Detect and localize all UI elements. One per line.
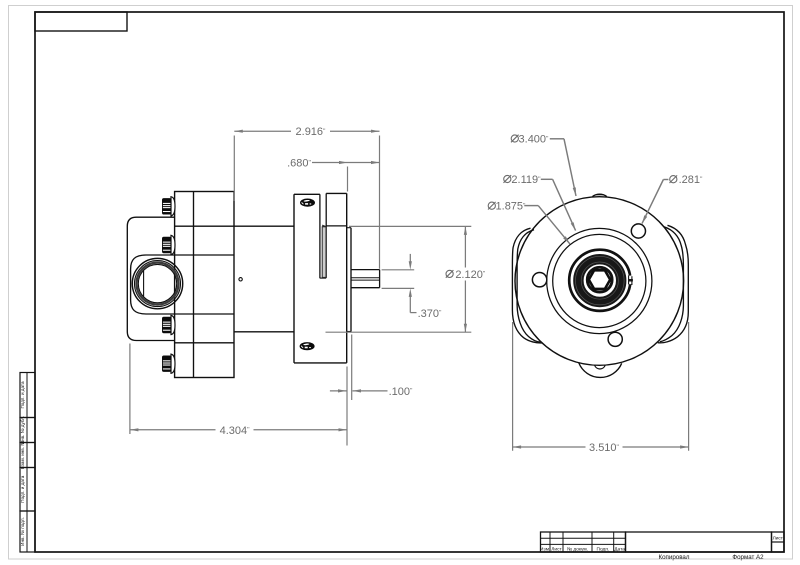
- svg-text:Подп. и дата: Подп. и дата: [20, 381, 25, 409]
- svg-text:4.304": 4.304": [220, 425, 251, 437]
- svg-text:№ докум.: № докум.: [567, 546, 588, 552]
- svg-text:3.400": 3.400": [519, 134, 550, 146]
- svg-text:.281": .281": [679, 174, 703, 186]
- svg-text:Изм.: Изм.: [540, 546, 550, 552]
- svg-text:Дата: Дата: [614, 546, 625, 552]
- svg-text:Взам. инв. №: Взам. инв. №: [20, 441, 25, 470]
- svg-text:Подп. и дата: Подп. и дата: [20, 475, 25, 503]
- svg-text:.680": .680": [287, 158, 311, 170]
- svg-text:Лист: Лист: [551, 546, 562, 552]
- svg-text:3.510": 3.510": [589, 442, 620, 454]
- svg-text:Копировал: Копировал: [658, 554, 689, 561]
- svg-text:Лист: Лист: [773, 535, 784, 541]
- svg-text:Подп.: Подп.: [597, 546, 610, 552]
- svg-text:Инв. № подл.: Инв. № подл.: [20, 517, 25, 546]
- svg-text:2.120": 2.120": [455, 269, 486, 281]
- svg-text:2.119": 2.119": [511, 174, 541, 186]
- svg-text:1.875": 1.875": [496, 201, 527, 213]
- svg-text:2.916": 2.916": [296, 126, 327, 138]
- svg-text:Формат А2: Формат А2: [732, 554, 764, 561]
- svg-text:.370": .370": [418, 308, 442, 320]
- svg-text:Инв. № дубл.: Инв. № дубл.: [20, 416, 25, 444]
- svg-text:.100": .100": [389, 386, 413, 398]
